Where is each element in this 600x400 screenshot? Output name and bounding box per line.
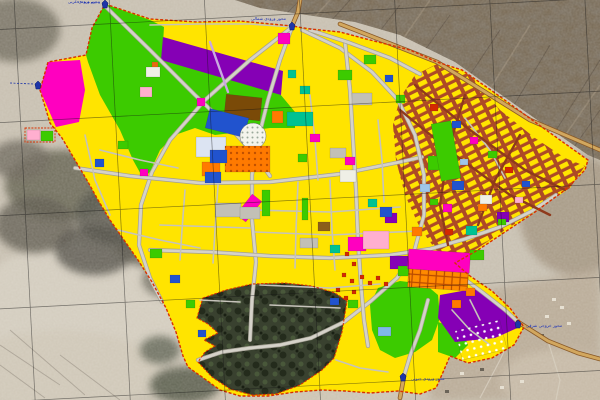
parcel <box>272 111 283 123</box>
parcel <box>318 222 330 231</box>
parcel <box>344 296 348 300</box>
parcel <box>430 104 438 111</box>
parcel <box>470 137 478 144</box>
parcel <box>215 203 241 217</box>
parcel <box>150 249 162 258</box>
parcel <box>27 130 40 140</box>
parcel <box>345 252 349 256</box>
parcel <box>460 159 468 165</box>
parcel <box>466 288 475 296</box>
parcel <box>443 204 452 212</box>
marker-label: محور ورودی جنوبی <box>411 376 445 381</box>
parcel <box>452 121 461 128</box>
parcel <box>412 227 422 236</box>
parcel <box>430 199 438 205</box>
parcel <box>95 159 104 167</box>
parcel <box>385 75 393 82</box>
parcel <box>278 33 290 44</box>
parcel <box>287 112 313 126</box>
parcel <box>330 298 339 305</box>
map-canvas[interactable]: محور ورودی غربیمحور ورودی شمالیمحور خروج… <box>0 0 600 400</box>
marker-label: محور خروجی شرقی <box>526 323 562 328</box>
parcel <box>170 275 180 283</box>
parcel <box>225 146 270 172</box>
parcel <box>480 195 492 204</box>
master-plan-map: محور ورودی غربیمحور ورودی شمالیمحور خروج… <box>0 0 600 400</box>
parcel <box>146 67 160 77</box>
parcel <box>298 154 307 162</box>
parcel <box>452 300 461 308</box>
parcel <box>350 279 354 283</box>
parcel <box>340 170 356 182</box>
parcel <box>310 134 320 142</box>
parcel <box>360 275 364 279</box>
parcel <box>466 226 477 235</box>
parcel <box>368 281 372 285</box>
parcel <box>118 141 128 149</box>
parcel <box>515 197 523 203</box>
parcel <box>522 181 530 187</box>
parcel <box>262 190 270 216</box>
parcel <box>197 98 205 106</box>
parcel-dotted-circle <box>240 123 266 149</box>
parcel <box>186 300 195 308</box>
marker-label: محور ورودی شمالی <box>251 16 286 21</box>
parcel <box>342 273 346 277</box>
parcel <box>363 231 389 249</box>
parcel <box>300 238 318 248</box>
parcel <box>288 70 296 78</box>
parcel <box>352 262 356 266</box>
parcel <box>348 300 358 308</box>
parcel <box>384 282 388 286</box>
parcel <box>140 87 152 97</box>
parcel <box>240 207 260 219</box>
parcel <box>488 151 497 158</box>
parcel <box>378 327 391 336</box>
parcel <box>445 229 453 235</box>
parcel <box>345 157 355 165</box>
parcel <box>330 245 340 253</box>
parcel <box>376 276 380 280</box>
parcel <box>420 184 430 192</box>
parcel <box>198 330 206 337</box>
marker-label: محور ورودی غربی <box>68 0 100 4</box>
parcel <box>505 167 513 173</box>
parcel <box>470 250 484 260</box>
parcel <box>380 207 392 217</box>
parcel <box>302 198 308 220</box>
parcel <box>300 86 310 94</box>
parcel <box>368 199 377 207</box>
parcel <box>330 148 346 158</box>
parcel <box>205 172 221 183</box>
parcel <box>338 70 352 80</box>
parcel <box>478 204 487 211</box>
parcel <box>452 181 464 190</box>
parcel <box>41 131 53 141</box>
parcel <box>364 55 376 64</box>
parcel <box>498 219 506 225</box>
parcel <box>140 169 148 176</box>
